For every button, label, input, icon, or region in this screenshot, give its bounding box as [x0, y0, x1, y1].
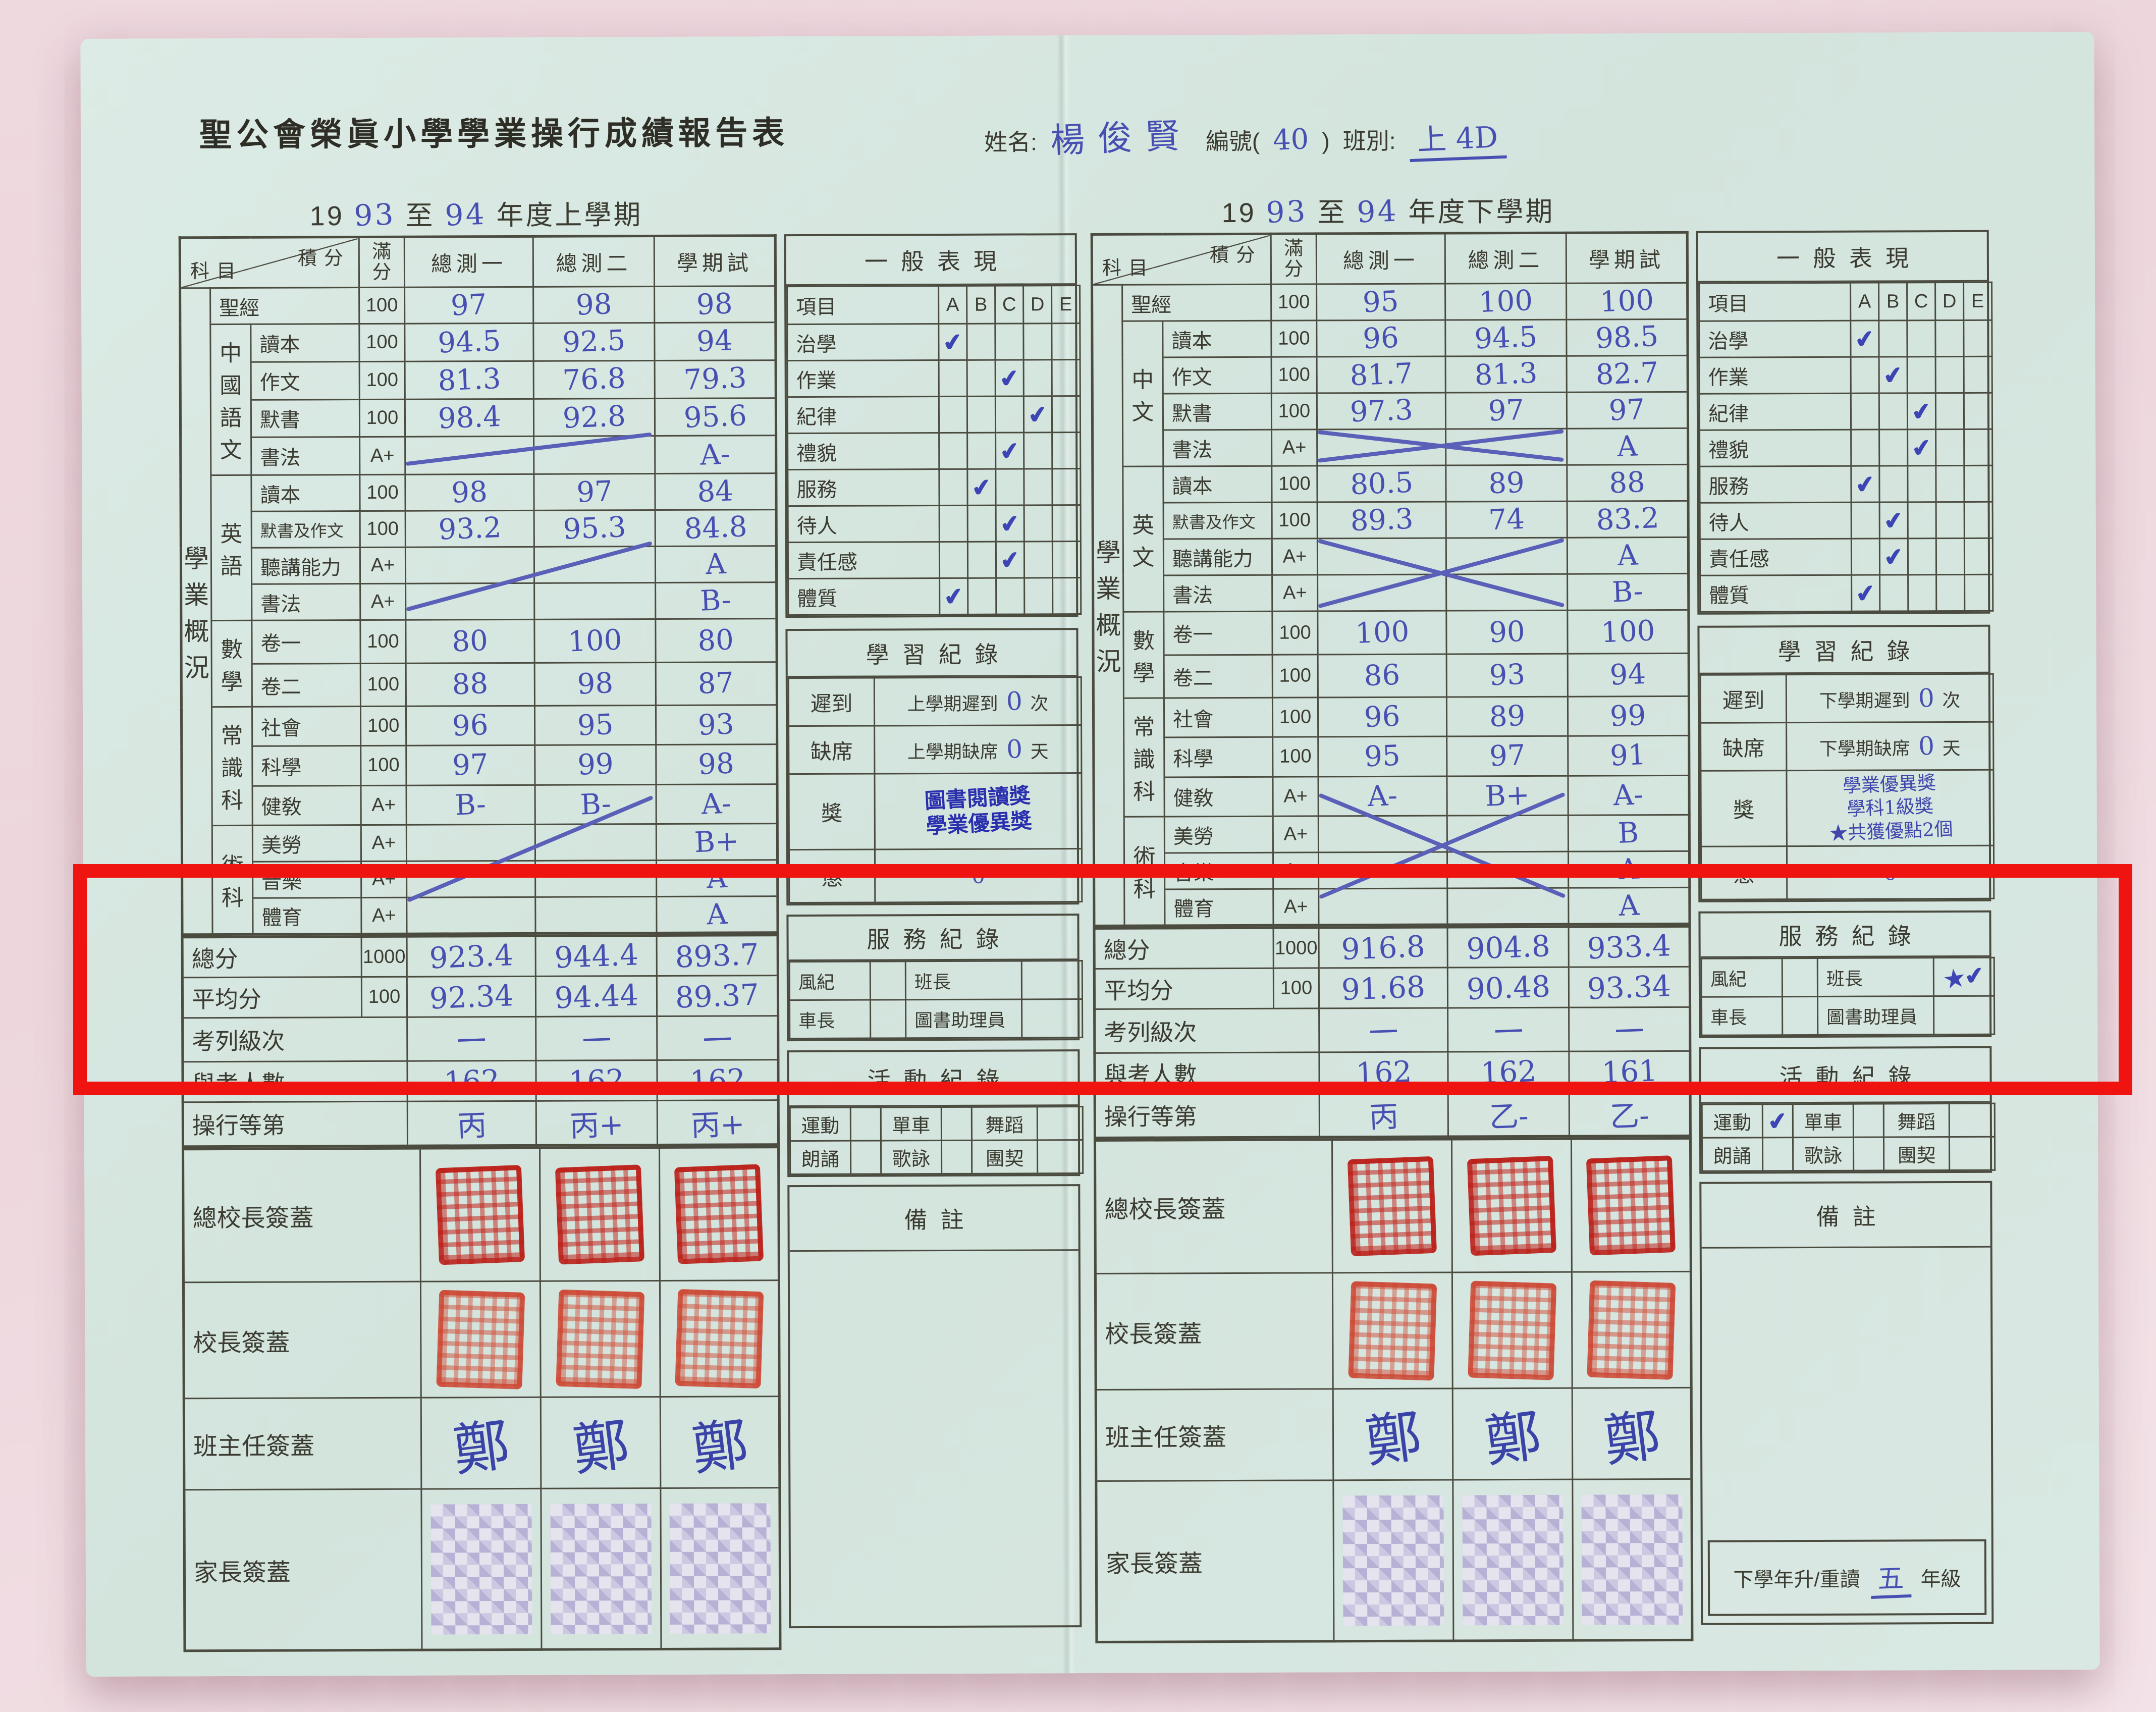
study-row: 遲到下學期遲到0次 [1700, 674, 1993, 723]
study-content: 上學期缺席0天 [875, 725, 1082, 774]
side-label-strip: 學業概況 [1092, 285, 1124, 926]
handwritten-total: 丙 [1368, 1093, 1399, 1136]
check-mark: ✔ [1854, 469, 1877, 499]
activity-row: 運動單車舞蹈 [790, 1107, 1083, 1141]
general-row: 責任感✔ [1700, 538, 1992, 575]
grade-letter-header: A [939, 286, 967, 324]
score-cell [534, 547, 655, 583]
activity-check-cell [1949, 1103, 1995, 1137]
handwritten-score: 87 [697, 666, 735, 701]
year-prefix: 19 [1222, 197, 1256, 229]
check-mark: ✔ [1882, 505, 1905, 535]
label: 治學 [788, 328, 938, 357]
grade-cell-C: ✔ [995, 360, 1023, 396]
subject-cell: 健敎 [252, 785, 361, 825]
handwritten-score: 89 [1489, 700, 1526, 734]
score-cell: 86 [1318, 654, 1446, 698]
column-header-exam: 學期試 [654, 236, 775, 287]
score-cell: 93 [656, 705, 777, 745]
handwritten-score: 98 [575, 288, 613, 322]
principal-seal [675, 1289, 764, 1388]
score-cell: 89 [1446, 465, 1567, 502]
check-mark: ✔ [998, 509, 1021, 539]
remarks-empty-area [790, 1251, 1080, 1626]
table-row: 作文10081.781.382.7 [1092, 355, 1688, 394]
label: 操行等第 [184, 1107, 407, 1141]
year-suffix: 年度上學期 [496, 192, 642, 233]
signature-row: 總校長簽蓋 [1095, 1138, 1691, 1273]
grade-cell-C [1908, 466, 1936, 502]
grade-cell-A: ✔ [1851, 320, 1879, 357]
grade-cell-D [1024, 542, 1052, 578]
handwritten-score: 95.3 [563, 511, 627, 546]
handwritten-score: 97.3 [1349, 394, 1413, 429]
award-row: 獎圖書閱讀獎學業優異獎 [789, 773, 1082, 850]
grade-cell-B: ✔ [1879, 539, 1908, 575]
remarks-title: 備註 [789, 1186, 1078, 1252]
general-row: 禮貌✔ [1700, 429, 1992, 466]
grade-cell-B [1879, 466, 1908, 502]
label: 項目 [1700, 287, 1850, 317]
grade-cell-B [1879, 430, 1908, 466]
table-row: 默書10097.39797 [1092, 392, 1688, 430]
grade-cell-C [1907, 320, 1935, 357]
score-cell: 99 [1568, 696, 1689, 736]
score-cell: 94 [655, 323, 776, 361]
check-mark: ✔ [999, 545, 1022, 575]
label: 總校長簽蓋 [1096, 1189, 1331, 1225]
subject-cell: 聖經 [210, 288, 359, 325]
grade-cell-D [1024, 469, 1052, 505]
general-row: 作業✔ [1699, 356, 1992, 394]
totals-value: 丙+ [657, 1100, 778, 1145]
handwritten-score: 81.3 [437, 362, 501, 398]
score-cell: 98.5 [1567, 319, 1688, 356]
subject-group: 常識科 [211, 707, 252, 825]
study-label: 遲到 [788, 678, 874, 726]
signature-label: 校長簽蓋 [183, 1281, 421, 1399]
full-mark-cell: 100 [359, 324, 405, 361]
label: 體質 [1701, 578, 1851, 608]
handwritten-score: 89.3 [1350, 503, 1414, 538]
score-cell: 96 [1318, 697, 1446, 737]
handwritten-score: A- [699, 438, 731, 471]
handwritten-score: 95 [577, 708, 614, 742]
score-cell: 95 [1317, 284, 1445, 320]
subject-cell: 默書 [251, 399, 359, 438]
grade-cell-E [1964, 393, 1992, 429]
handwritten-score: 88 [1609, 466, 1646, 500]
label: 班主任簽蓋 [185, 1426, 420, 1462]
table-row: 默書10098.492.895.6 [180, 398, 776, 438]
grade-cell-C: ✔ [996, 505, 1024, 542]
activity-label: 歌詠 [1793, 1137, 1853, 1170]
score-cell: A- [655, 436, 776, 474]
head-principal-seal [436, 1165, 525, 1265]
score-cell [1446, 538, 1567, 574]
grade-cell-C: ✔ [1907, 393, 1935, 430]
activity-label: 舞蹈 [1883, 1104, 1949, 1137]
general-row: 責任感✔ [788, 542, 1081, 579]
class-value: 上 4D [1408, 113, 1506, 162]
table-row: 健敎A+A-B+A- [1094, 775, 1689, 817]
subject-cell: 讀本 [251, 324, 359, 362]
grade-table: 科目積分滿分總測一總測二學期試學業概況聖經100979898中國語文讀本1009… [179, 234, 779, 936]
grade-cell-D [1025, 578, 1053, 614]
full-mark-cell: 100 [1273, 737, 1318, 777]
signature-cell [660, 1147, 779, 1281]
handwritten-score: 80 [452, 624, 489, 659]
activity-label: 運動 [790, 1107, 850, 1141]
score-cell [534, 436, 655, 474]
table-row: 聽講能力A+A [1093, 537, 1688, 575]
grade-cell-E [1052, 505, 1081, 542]
subject-name: 聽講能力 [1164, 542, 1271, 572]
subject-name: 默書及作文 [252, 517, 359, 542]
signature-cell [420, 1281, 541, 1398]
grade-cell-A [939, 396, 967, 433]
grade-cell-B: ✔ [967, 469, 996, 505]
subject-group: 常識科 [1123, 698, 1164, 817]
activity-check-cell [941, 1107, 972, 1140]
full-mark-cell: A+ [1273, 816, 1318, 852]
signature-cell [1332, 1139, 1452, 1273]
handwritten-score: 96 [1363, 322, 1400, 356]
study-content: 下學期缺席0天 [1787, 722, 1993, 770]
year-to: 94 [444, 197, 487, 233]
activity-check-cell [1037, 1107, 1083, 1140]
grade-cell-D [1935, 356, 1964, 393]
handwritten-score: 95.6 [683, 399, 747, 435]
subject-name: 卷二 [253, 670, 360, 700]
full-mark-cell: A+ [360, 437, 405, 474]
activity-check: ✔ [1766, 1106, 1789, 1136]
score-cell: A [655, 546, 776, 583]
score-cell: 100 [1568, 610, 1689, 653]
subject-group-label: 常識科 [1124, 699, 1164, 816]
signature-cell: 鄭 [541, 1397, 661, 1488]
subject-header: 科目 [190, 255, 243, 283]
grade-cell-A [939, 469, 967, 505]
grade-letter-header: A [1851, 283, 1879, 320]
score-cell: 81.3 [405, 361, 533, 399]
signature-cell [1572, 1271, 1691, 1388]
totals-row: 操行等第丙乙-乙- [1095, 1091, 1690, 1138]
activity-check-cell: ✔ [1762, 1104, 1793, 1138]
grade-cell-C: ✔ [1908, 430, 1936, 466]
grade-cell-C [995, 396, 1023, 433]
score-cell: 100 [1567, 283, 1688, 319]
award-row: 獎學業優異獎學科1級獎★共獲優點2個 [1701, 770, 1994, 846]
head-principal-seal [1586, 1155, 1676, 1255]
full-mark-cell: 100 [1271, 320, 1317, 357]
id-label-close: ) [1322, 127, 1330, 154]
handwritten-score: 99 [577, 748, 614, 782]
grade-cell-C [996, 578, 1025, 614]
highlight-box [73, 864, 2132, 1095]
subject-name: 美勞 [253, 829, 360, 859]
activity-label: 團契 [1883, 1137, 1949, 1170]
year-suffix: 年度下學期 [1408, 189, 1554, 230]
general-grid: 項目ABCDE治學✔作業✔紀律✔禮貌✔服務✔待人✔責任感✔體質✔ [1698, 282, 1993, 613]
head-principal-seal [1467, 1156, 1556, 1256]
score-cell: B+ [1447, 776, 1568, 816]
handwritten-score: 98 [576, 667, 614, 701]
general-performance-box: 一般表現項目ABCDE治學✔作業✔紀律✔禮貌✔服務✔待人✔責任感✔體質✔ [784, 233, 1079, 618]
score-cell: A [1567, 428, 1688, 465]
label: 禮貌 [1700, 433, 1850, 463]
column-header-t1: 總測一 [404, 236, 533, 287]
class-teacher-signature: 鄭 [448, 1399, 514, 1487]
subject-group: 數學 [211, 620, 252, 707]
score-cell: 94.5 [405, 323, 533, 361]
subject-name: 卷一 [1164, 618, 1271, 648]
handwritten-score: 88 [452, 667, 489, 702]
study-content: 下學期遲到0次 [1786, 674, 1993, 722]
activity-label: 朗誦 [790, 1141, 850, 1174]
activity-row: 朗誦歌詠團契 [1702, 1137, 1995, 1171]
class-teacher-signature: 鄭 [1598, 1389, 1664, 1478]
handwritten-total: 乙- [1488, 1092, 1529, 1136]
item-header-cell: 項目 [787, 286, 939, 325]
grade-cell-A [1851, 430, 1879, 466]
full-mark-cell: 100 [359, 399, 405, 437]
subject-cell: 科學 [252, 746, 361, 786]
signature-row: 總校長簽蓋 [183, 1147, 779, 1282]
subject-name: 社會 [1165, 703, 1272, 732]
class-teacher-signature: 鄭 [567, 1399, 633, 1487]
subject-cell: 卷一 [1164, 611, 1272, 655]
check-mark: ✔ [941, 327, 964, 357]
subject-name: 科學 [1165, 742, 1272, 772]
year-header: 1993至94年度下學期 [1090, 189, 1686, 233]
subject-cell: 讀本 [1163, 320, 1271, 357]
score-cell: 80 [406, 619, 534, 663]
grade-cell-D [1023, 360, 1052, 396]
handwritten-total: 丙+ [569, 1100, 624, 1145]
label: 待人 [1701, 506, 1851, 536]
grade-cell-E [1965, 574, 1993, 611]
student-info-bar: 姓名: 楊俊賢 編號( 40 ) 班別: 上 4D [984, 109, 1506, 162]
award-label: 獎 [789, 774, 875, 850]
full-mark-cell: 100 [1272, 502, 1317, 539]
study-unit: 次 [1942, 686, 1960, 712]
grade-cell-D [1936, 574, 1965, 611]
subject-name: 作文 [252, 366, 359, 396]
signature-cell [1452, 1272, 1572, 1388]
activity-check-cell [1853, 1104, 1883, 1137]
table-row: 卷二100889887 [181, 662, 777, 707]
study-row: 缺席下學期缺席0天 [1701, 722, 1993, 771]
award-content: 圖書閱讀獎學業優異獎 [875, 773, 1082, 849]
handwritten-score: B+ [694, 825, 740, 859]
subject-name: 美勞 [1165, 820, 1272, 849]
study-record-title: 學習紀錄 [787, 630, 1076, 677]
handwritten-score: 90 [1488, 615, 1526, 650]
grade-cell-E [1052, 542, 1081, 578]
grade-letter-header: D [1023, 286, 1052, 324]
handwritten-score: 98 [698, 747, 735, 782]
full-mark-cell: 100 [359, 361, 405, 399]
grade-table: 科目積分滿分總測一總測二學期試學業概況聖經10095100100中文讀本1009… [1091, 231, 1691, 927]
table-row: 學業概況聖經10095100100 [1092, 283, 1688, 321]
promotion-note: 下學年升/重讀五年級 [1708, 1539, 1987, 1616]
subject-name: 聖經 [211, 291, 358, 321]
signature-cell [541, 1488, 661, 1649]
general-row: 作業✔ [787, 360, 1080, 397]
general-item-label: 禮貌 [788, 433, 939, 470]
signature-cell: 鄭 [421, 1397, 541, 1489]
subject-name: 讀本 [251, 328, 358, 358]
table-row: 默書及作文10093.295.384.8 [181, 510, 776, 548]
grade-cell-D [1936, 465, 1964, 502]
general-performance-title: 一般表現 [786, 235, 1075, 286]
side-label: 學業概況 [1094, 515, 1123, 695]
table-row: 書法A+B- [181, 582, 777, 621]
full-mark-cell: 100 [1272, 654, 1318, 698]
handwritten-score: 84 [697, 474, 734, 509]
full-mark-cell: 100 [1272, 466, 1317, 502]
full-mark-cell: A+ [360, 547, 405, 583]
score-cell: 84 [655, 473, 776, 510]
signature-cell [421, 1488, 542, 1650]
subject-cell: 書法 [1164, 575, 1272, 612]
pixelated-parent-signature [1581, 1494, 1683, 1625]
handwritten-score: 98.4 [437, 400, 501, 436]
score-cell: 97 [534, 474, 655, 511]
handwritten-score: 80 [697, 623, 735, 658]
check-mark: ✔ [1853, 324, 1876, 354]
score-cell: 98 [656, 744, 777, 784]
general-item-label: 體質 [1700, 575, 1852, 612]
grade-cell-D [1936, 429, 1964, 465]
totals-value: 丙 [1319, 1092, 1448, 1137]
signature-label: 總校長簽蓋 [1095, 1140, 1332, 1274]
handwritten-score: 95 [1364, 739, 1401, 774]
label: 紀律 [1700, 397, 1850, 426]
signature-cell [1571, 1138, 1691, 1272]
grade-cell-A: ✔ [940, 578, 968, 614]
award-stamp: 圖書閱讀獎學業優異獎 [875, 780, 1082, 842]
signature-label: 家長簽蓋 [1096, 1480, 1334, 1642]
label: 家長簽蓋 [1098, 1543, 1333, 1579]
table-row: 聽講能力A+A [181, 546, 776, 584]
score-cell: 80.5 [1317, 465, 1446, 502]
check-mark: ✔ [1881, 360, 1905, 390]
study-record-title: 學習紀錄 [1699, 627, 1988, 674]
general-item-label: 待人 [1700, 502, 1851, 539]
handwritten-score: 76.8 [562, 362, 626, 397]
score-header: 積分 [1210, 239, 1262, 267]
activity-label: 單車 [881, 1107, 941, 1141]
general-item-label: 責任感 [788, 542, 939, 579]
handwritten-score: 94 [1609, 658, 1647, 692]
handwritten-score: A- [1613, 778, 1644, 812]
handwritten-score: 80.5 [1350, 466, 1414, 502]
signature-cell [1451, 1139, 1572, 1272]
general-item-label: 紀律 [787, 397, 939, 434]
pixelated-parent-signature [669, 1503, 771, 1634]
head-principal-seal [555, 1164, 644, 1264]
grade-cell-D [1935, 320, 1964, 356]
score-cell: B- [535, 784, 656, 824]
handwritten-score: 93 [697, 708, 735, 742]
score-cell [1446, 429, 1567, 465]
subject-name: 讀本 [1164, 469, 1271, 499]
general-item-label: 治學 [787, 324, 939, 361]
general-row: 治學✔ [1699, 320, 1992, 357]
general-item-label: 禮貌 [1700, 430, 1851, 466]
handwritten-score: B- [699, 583, 732, 617]
grade-cell-B: ✔ [1879, 357, 1907, 393]
handwritten-score: B- [455, 788, 487, 822]
score-cell: 89.3 [1317, 502, 1446, 539]
remarks-box: 備註下學年升/重讀五年級 [1699, 1181, 1993, 1625]
score-cell: 82.7 [1567, 355, 1688, 392]
handwritten-score: A [1616, 539, 1638, 573]
handwritten-score: 94.5 [1474, 320, 1538, 356]
handwritten-score: 99 [1609, 699, 1647, 733]
label: 體質 [789, 582, 939, 612]
general-item-label: 責任感 [1700, 539, 1851, 575]
general-item-label: 服務 [788, 469, 939, 506]
study-value: 0 [1006, 734, 1023, 764]
study-text: 下學期缺席 [1819, 734, 1910, 761]
pixelated-parent-signature [550, 1504, 652, 1634]
subject-name: 書法 [252, 587, 359, 617]
remarks-title: 備註 [1701, 1183, 1990, 1249]
subject-name: 讀本 [1163, 324, 1270, 354]
handwritten-score: A- [701, 787, 732, 821]
subject-cell: 社會 [252, 707, 360, 746]
grade-cell-A [939, 433, 967, 469]
score-header: 積分 [298, 242, 350, 270]
score-cell [405, 547, 534, 583]
year-header: 1993至94年度上學期 [178, 192, 774, 236]
subject-cell: 讀本 [251, 475, 360, 512]
score-cell [1318, 574, 1446, 611]
activity-check-cell [1949, 1137, 1995, 1170]
head-principal-seal [674, 1164, 764, 1264]
score-cell: 96 [1317, 320, 1445, 357]
grade-letter-header: C [995, 286, 1023, 324]
activity-label: 朗誦 [1702, 1138, 1762, 1171]
general-item-label: 治學 [1699, 320, 1851, 357]
side-label-strip: 學業概況 [180, 288, 212, 935]
table-row: 默書及作文10089.37483.2 [1093, 501, 1688, 539]
grade-cell-A: ✔ [1851, 466, 1879, 502]
full-mark-cell: A+ [361, 785, 406, 825]
grade-cell-A: ✔ [1852, 575, 1880, 611]
study-row: 遲到上學期遲到0次 [788, 677, 1081, 726]
table-row: 科學100979998 [182, 744, 777, 786]
score-cell: 100 [534, 619, 656, 663]
subject-cell: 卷二 [1164, 655, 1272, 698]
score-cell: 87 [656, 662, 777, 705]
handwritten-score: 97 [1488, 394, 1525, 428]
label: 家長簽蓋 [186, 1552, 421, 1588]
subject-group-label: 常識科 [212, 708, 252, 825]
subject-cell: 科學 [1164, 737, 1273, 777]
report-card-paper: 聖公會榮眞小學學業操行成績報告表 姓名: 楊俊賢 編號( 40 ) 班別: 上 … [80, 32, 2099, 1677]
grade-cell-C [995, 324, 1023, 360]
subject-name: 書法 [1164, 578, 1271, 608]
year-to: 94 [1356, 193, 1398, 229]
activity-check-cell [850, 1107, 881, 1141]
score-cell: 90 [1446, 610, 1568, 654]
general-row: 服務✔ [1700, 465, 1992, 503]
grade-cell-D [1936, 538, 1964, 574]
